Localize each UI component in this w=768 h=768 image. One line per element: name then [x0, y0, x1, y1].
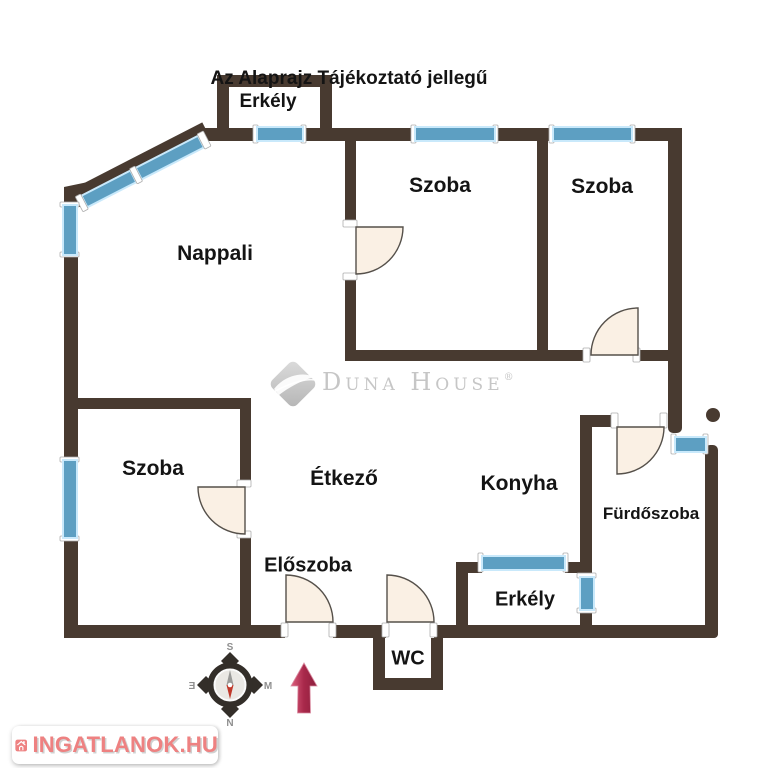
window [63, 460, 77, 538]
door-szoba-mid [356, 227, 403, 274]
door-entrance [286, 575, 333, 622]
ingatlanok-logo: INGATLANOK.HU [12, 726, 218, 764]
room-label-eloszoba: Előszoba [264, 555, 352, 578]
wall-end-dot [706, 408, 720, 422]
room-label-szoba-left: Szoba [122, 457, 184, 481]
window [63, 205, 77, 255]
room-label-szoba-mid: Szoba [409, 174, 471, 198]
room-label-balcony-bottom: Erkély [495, 589, 555, 612]
window [580, 577, 594, 610]
door-bathroom [617, 427, 664, 474]
room-label-konyha: Konyha [480, 472, 557, 496]
room-label-wc: WC [391, 648, 424, 671]
direction-arrow-icon [291, 663, 317, 713]
compass-label-right: M [264, 681, 272, 692]
ingatlanok-house-icon [15, 729, 27, 762]
door-wc [387, 575, 434, 622]
room-label-furdoszoba: Fürdőszoba [603, 504, 699, 524]
door-szoba-left [198, 487, 245, 534]
door-szoba-right [591, 308, 638, 355]
window [553, 127, 632, 141]
room-label-szoba-right: Szoba [571, 175, 633, 199]
window [415, 127, 495, 141]
room-label-balcony-top: Erkély [239, 91, 296, 113]
compass-label-top: S [227, 642, 234, 653]
room-label-etkezo: Étkező [310, 467, 378, 491]
compass-label-bottom: N [226, 718, 233, 729]
registered-mark: ® [504, 372, 514, 383]
diagonal-wall [67, 122, 214, 214]
room-label-nappali: Nappali [177, 242, 253, 266]
plan-disclaimer-title: Az Alaprajz Tájékoztató jellegű [211, 68, 488, 90]
compass-label-left: Ǝ [189, 681, 196, 692]
window [257, 127, 303, 141]
floorplan-canvas: S N Ǝ M Az Alaprajz Tájékoztató jellegű … [0, 0, 768, 768]
dunahouse-brand: Duna House [322, 368, 504, 396]
ingatlanok-logo-text: INGATLANOK.HU [32, 732, 218, 758]
window [482, 556, 565, 570]
dunahouse-watermark-icon [268, 359, 317, 408]
compass-rose: S N Ǝ M [189, 642, 273, 729]
dunahouse-watermark-text: Duna House® [322, 368, 514, 396]
window [675, 437, 706, 452]
